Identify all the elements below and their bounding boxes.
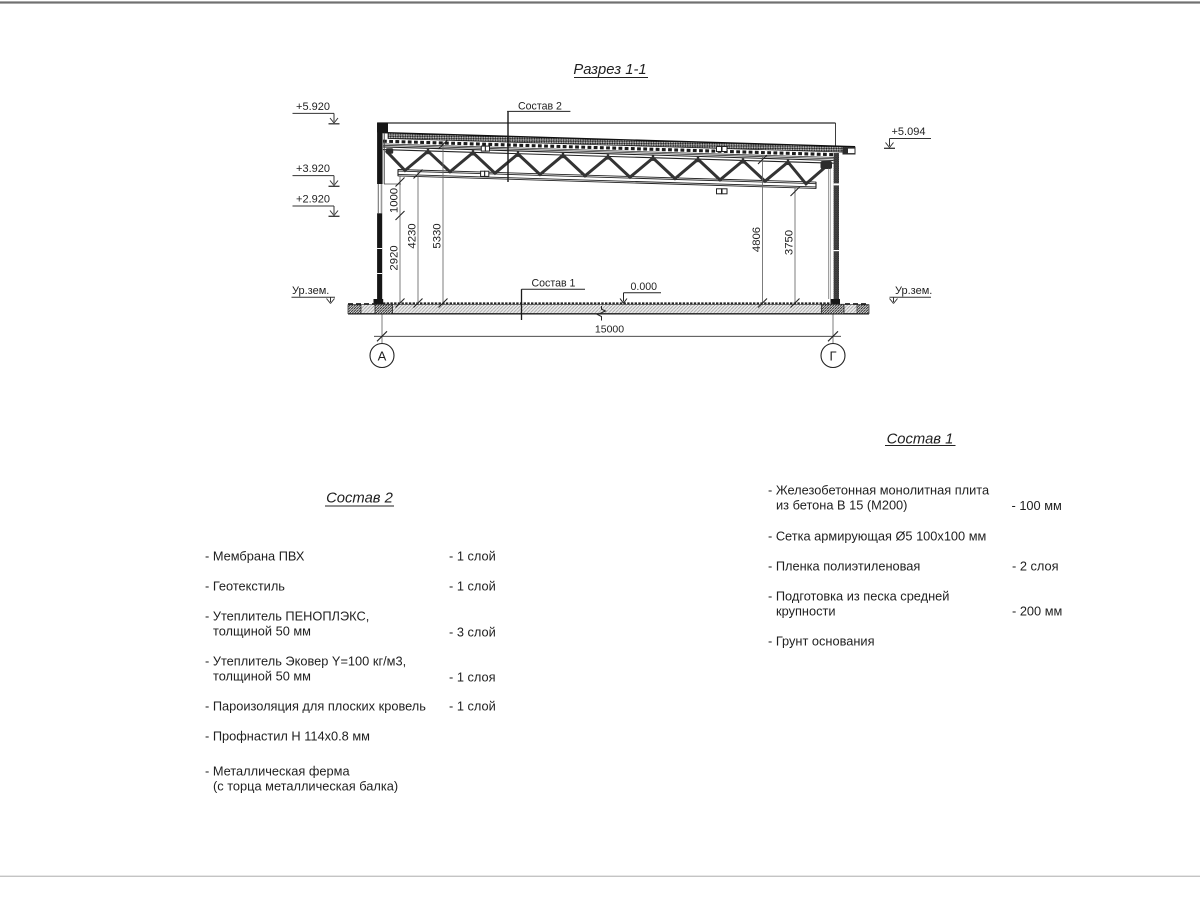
svg-text:+3.920: +3.920 xyxy=(296,163,330,175)
svg-text:- 3 слой: - 3 слой xyxy=(449,625,496,640)
svg-text:- 2 слоя: - 2 слоя xyxy=(1012,559,1059,574)
svg-text:Состав 1: Состав 1 xyxy=(532,278,576,290)
svg-text:1000: 1000 xyxy=(388,188,400,213)
svg-text:4230: 4230 xyxy=(406,223,418,248)
svg-text:Ур.зем.: Ур.зем. xyxy=(292,285,329,297)
svg-text:- 200 мм: - 200 мм xyxy=(1012,604,1062,619)
svg-text:(с торца металлическая балка): (с торца металлическая балка) xyxy=(213,779,398,794)
svg-text:- 1 слой: - 1 слой xyxy=(449,579,496,594)
svg-text:- Профнастил Н 114х0.8 мм: - Профнастил Н 114х0.8 мм xyxy=(205,729,370,744)
svg-text:- 100 мм: - 100 мм xyxy=(1012,498,1062,513)
svg-text:толщиной 50 мм: толщиной 50 мм xyxy=(213,624,311,639)
svg-text:- Пленка полиэтиленовая: - Пленка полиэтиленовая xyxy=(768,559,920,574)
svg-text:15000: 15000 xyxy=(595,324,624,336)
svg-text:толщиной 50 мм: толщиной 50 мм xyxy=(213,669,311,684)
svg-text:из бетона В 15 (М200): из бетона В 15 (М200) xyxy=(776,498,907,513)
svg-text:- 1 слой: - 1 слой xyxy=(449,549,496,564)
svg-text:Состав 2: Состав 2 xyxy=(326,491,394,507)
svg-text:0.000: 0.000 xyxy=(631,281,658,293)
svg-text:- Сетка армирующая Ø5 100х100: - Сетка армирующая Ø5 100х100 мм xyxy=(768,529,986,544)
svg-text:- Утеплитель Эковер Y=100 кг/м: - Утеплитель Эковер Y=100 кг/м3, xyxy=(205,654,406,669)
svg-text:+5.920: +5.920 xyxy=(296,101,330,113)
svg-text:- Грунт основания: - Грунт основания xyxy=(768,634,875,649)
svg-text:4806: 4806 xyxy=(751,227,763,252)
svg-text:- Геотекстиль: - Геотекстиль xyxy=(205,579,285,594)
svg-text:- 1 слой: - 1 слой xyxy=(449,699,496,714)
svg-text:крупности: крупности xyxy=(776,604,836,619)
svg-text:Ур.зем.: Ур.зем. xyxy=(895,285,932,297)
svg-text:+5.094: +5.094 xyxy=(892,126,926,138)
svg-text:- Металлическая ферма: - Металлическая ферма xyxy=(205,764,350,779)
svg-text:3750: 3750 xyxy=(783,230,795,255)
svg-text:- Железобетонная монолитная п: - Железобетонная монолитная плита xyxy=(768,483,990,498)
svg-text:Состав 2: Состав 2 xyxy=(518,100,562,112)
svg-text:- Мембрана ПВХ: - Мембрана ПВХ xyxy=(205,549,305,564)
svg-text:+2.920: +2.920 xyxy=(296,194,330,206)
svg-text:- Подготовка из песка средней: - Подготовка из песка средней xyxy=(768,589,949,604)
svg-text:5330: 5330 xyxy=(431,223,443,248)
svg-text:А: А xyxy=(378,348,387,363)
svg-text:2920: 2920 xyxy=(388,245,400,270)
svg-text:- Утеплитель ПЕНОПЛЭКС,: - Утеплитель ПЕНОПЛЭКС, xyxy=(205,609,369,624)
svg-text:- Пароизоляция для плоских кро: - Пароизоляция для плоских кровель xyxy=(205,699,426,714)
svg-text:- 1 слоя: - 1 слоя xyxy=(449,670,496,685)
svg-text:Г: Г xyxy=(829,348,836,363)
svg-text:Разрез 1-1: Разрез 1-1 xyxy=(573,62,646,78)
